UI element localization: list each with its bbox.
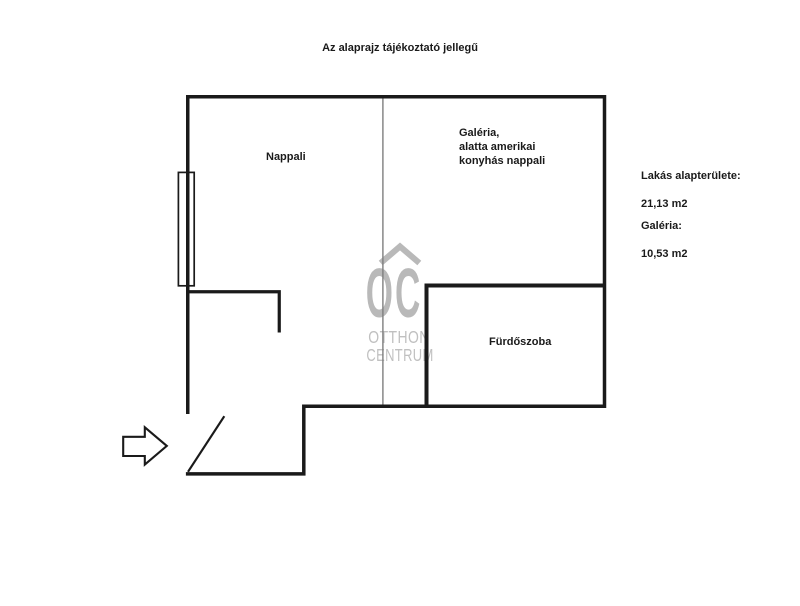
interior-partition-wall — [186, 292, 279, 333]
room-label-galeria: Galéria, alatta amerikai konyhás nappali — [459, 126, 545, 168]
floorplan-drawing: OC OTTHON CENTRUM — [0, 0, 800, 606]
door-swing-line — [188, 416, 224, 472]
galeria-area-label: Galéria: — [641, 219, 687, 233]
galeria-area-info: Galéria: 10,53 m2 — [641, 205, 687, 275]
floorplan-page: Az alaprajz tájékoztató jellegű OC OTTHO… — [0, 0, 800, 606]
apartment-area-label: Lakás alapterülete: — [641, 169, 741, 183]
galeria-area-value: 10,53 m2 — [641, 247, 687, 261]
watermark: OC OTTHON CENTRUM — [366, 247, 434, 366]
room-label-furdoszoba: Fürdőszoba — [489, 335, 551, 349]
room-label-nappali: Nappali — [266, 150, 306, 164]
entrance-arrow-icon — [123, 427, 167, 464]
watermark-monogram: OC — [366, 254, 422, 332]
watermark-text-line1: OTTHON — [368, 329, 429, 348]
watermark-text-line2: CENTRUM — [366, 346, 433, 365]
